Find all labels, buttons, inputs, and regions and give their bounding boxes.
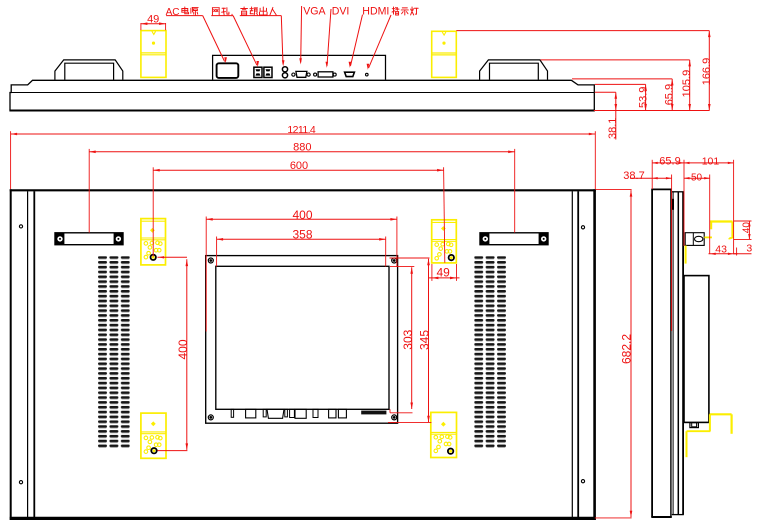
svg-text:DVI: DVI [332,5,350,17]
svg-text:38.7: 38.7 [623,170,644,182]
svg-text:1211.4: 1211.4 [287,124,315,136]
svg-text:HDMI: HDMI [362,5,389,17]
svg-text:65.9: 65.9 [659,155,680,167]
svg-text:600: 600 [290,160,308,172]
svg-text:345: 345 [418,330,432,350]
svg-text:303: 303 [401,329,415,349]
svg-text:VGA: VGA [303,5,326,17]
svg-text:AC: AC [166,7,180,18]
svg-text:358: 358 [292,227,312,241]
svg-text:400: 400 [292,208,312,222]
svg-text:101: 101 [702,155,720,167]
svg-text:105.9: 105.9 [681,70,693,98]
svg-text:40: 40 [742,222,753,234]
svg-text:880: 880 [293,142,311,154]
svg-text:166.9: 166.9 [701,58,713,86]
svg-text:400: 400 [176,339,190,359]
svg-text:3: 3 [746,242,752,254]
svg-text:53.9: 53.9 [638,87,650,108]
svg-text:65.9: 65.9 [664,84,676,105]
svg-text:682.2: 682.2 [619,334,633,364]
svg-text:38.1: 38.1 [607,118,619,139]
